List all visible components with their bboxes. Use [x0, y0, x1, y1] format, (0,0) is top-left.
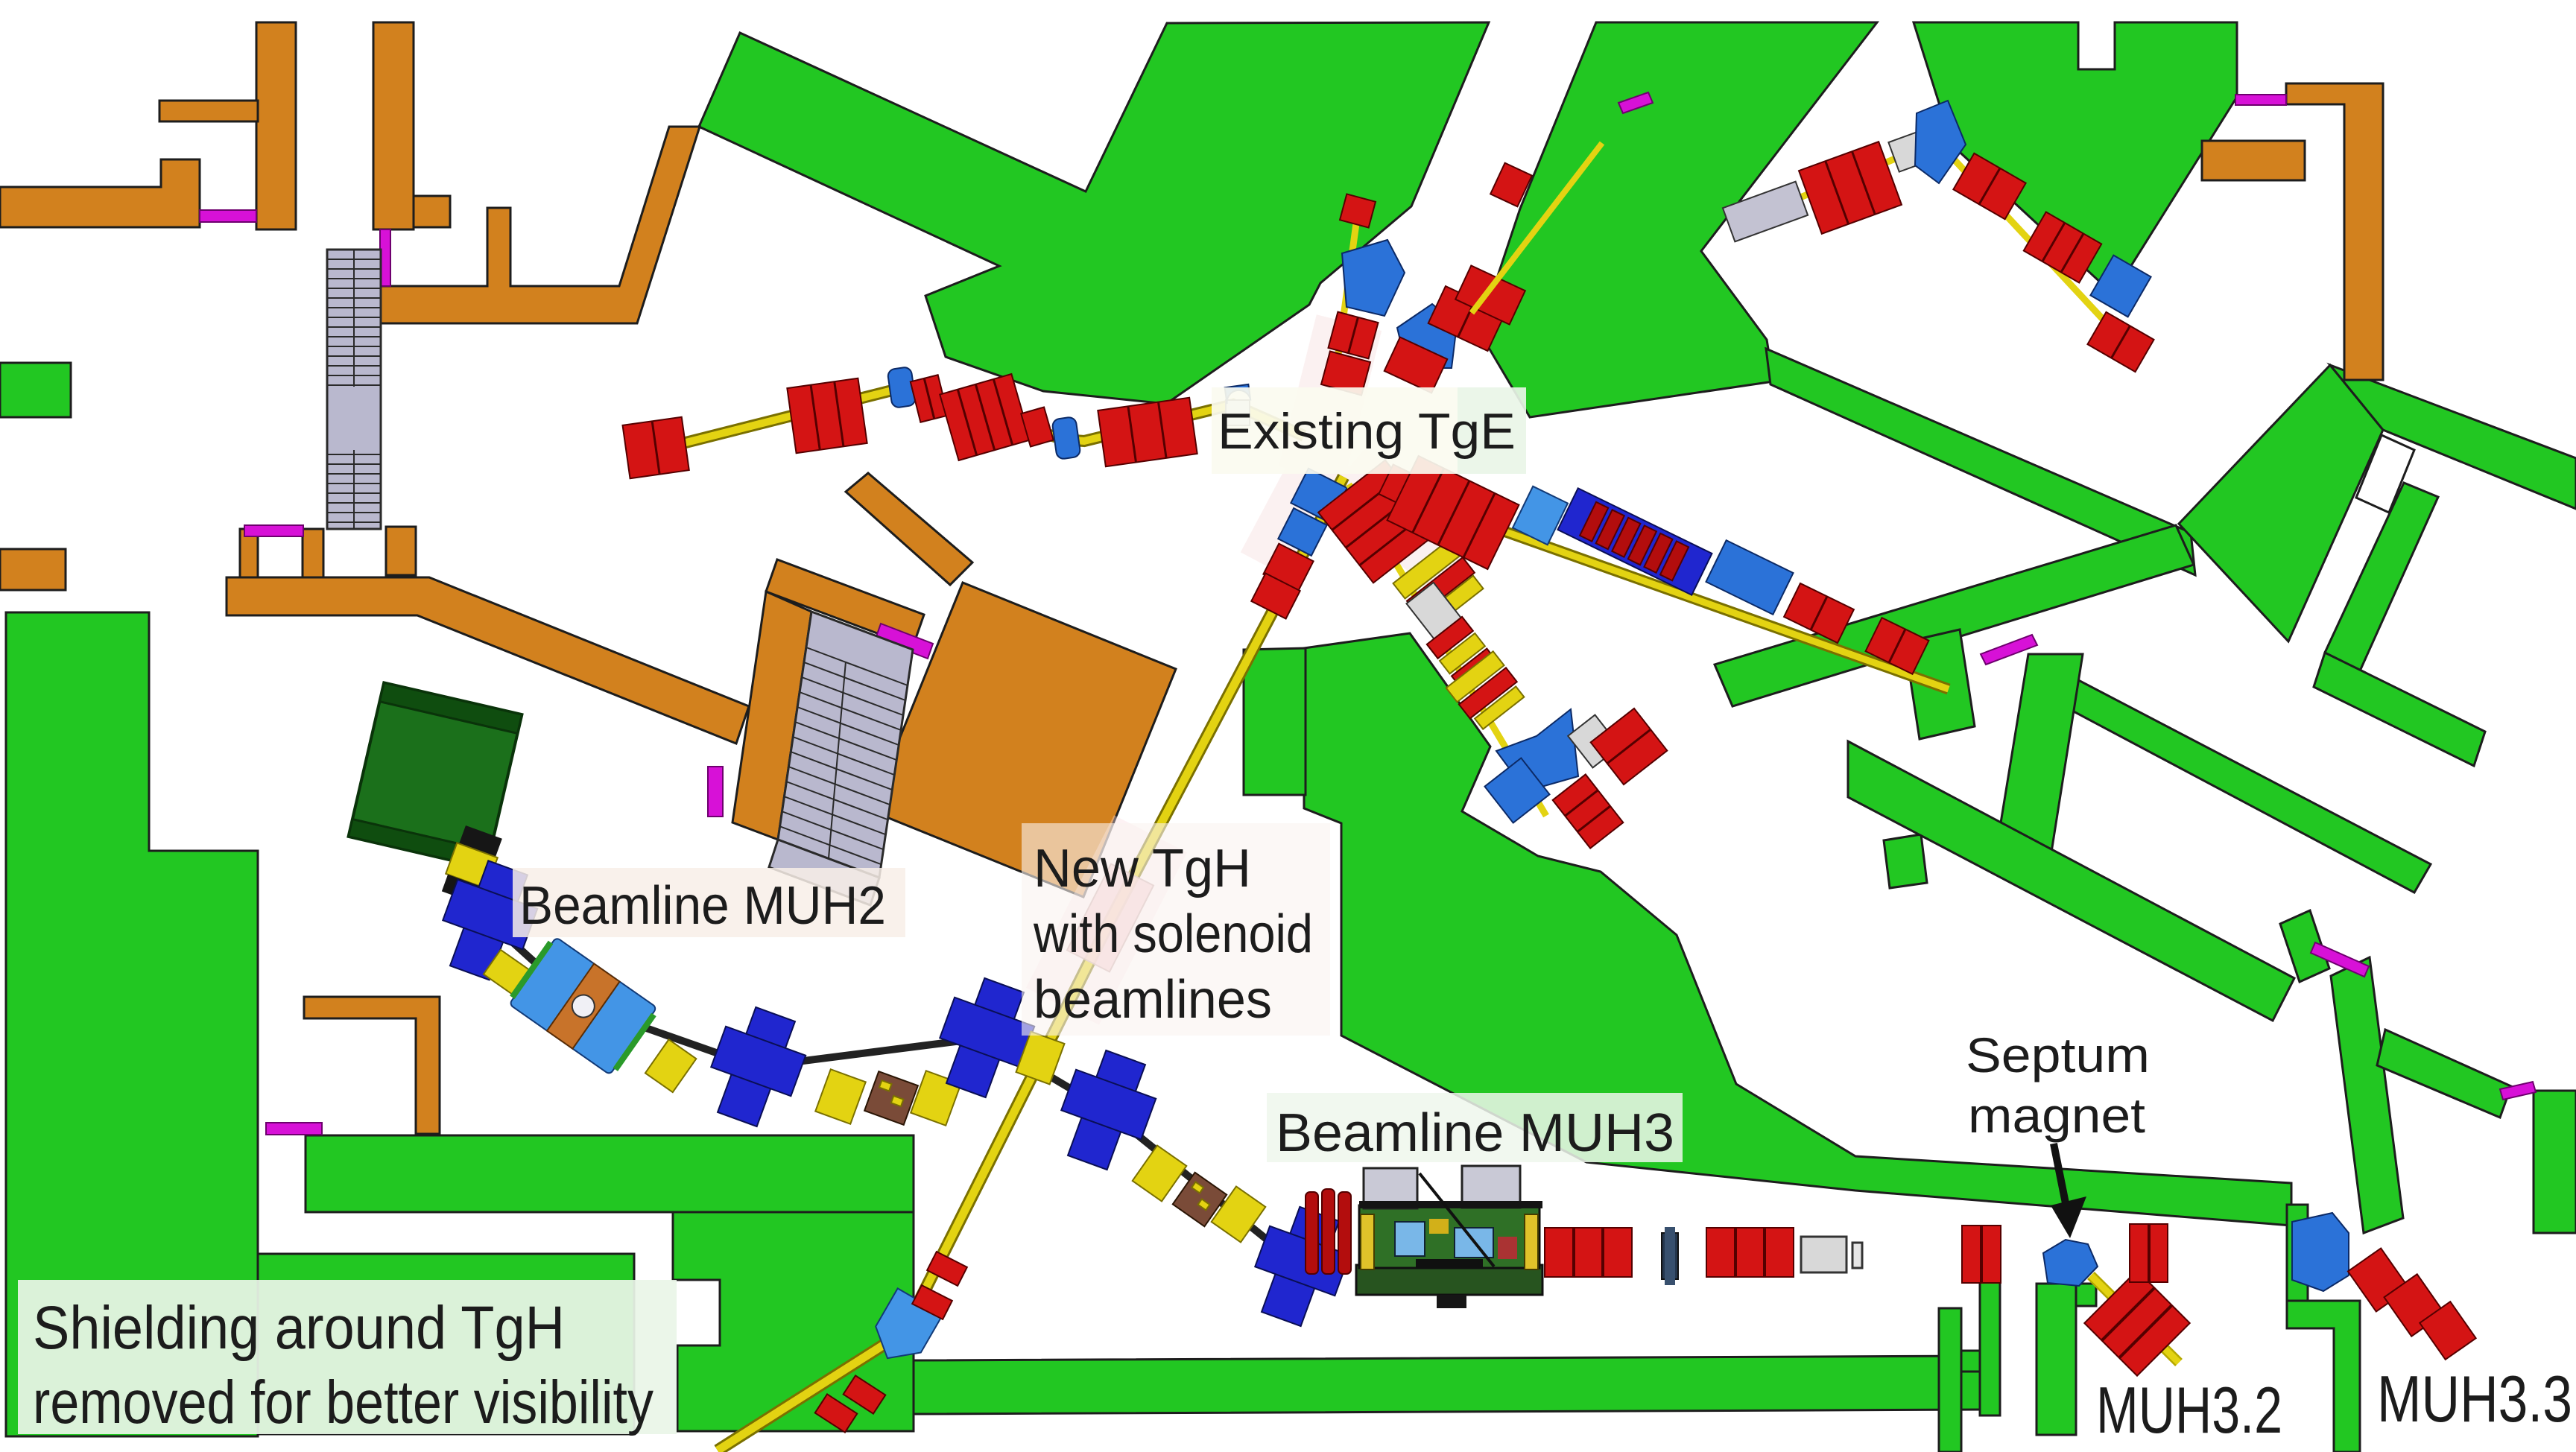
- svg-text:Shielding around TgH: Shielding around TgH: [33, 1294, 565, 1362]
- svg-text:New TgH: New TgH: [1034, 839, 1251, 898]
- svg-text:Beamline MUH3: Beamline MUH3: [1276, 1103, 1674, 1163]
- svg-text:Septum: Septum: [1966, 1027, 2150, 1082]
- svg-text:removed for better visibility: removed for better visibility: [33, 1369, 654, 1436]
- svg-text:MUH3.2: MUH3.2: [2096, 1373, 2282, 1447]
- svg-text:beamlines: beamlines: [1034, 970, 1272, 1030]
- svg-text:Existing TgE: Existing TgE: [1218, 403, 1516, 460]
- svg-text:Beamline MUH2: Beamline MUH2: [519, 876, 886, 936]
- svg-text:with solenoid: with solenoid: [1033, 904, 1313, 964]
- svg-text:MUH3.3: MUH3.3: [2377, 1362, 2572, 1436]
- svg-text:magnet: magnet: [1968, 1088, 2145, 1143]
